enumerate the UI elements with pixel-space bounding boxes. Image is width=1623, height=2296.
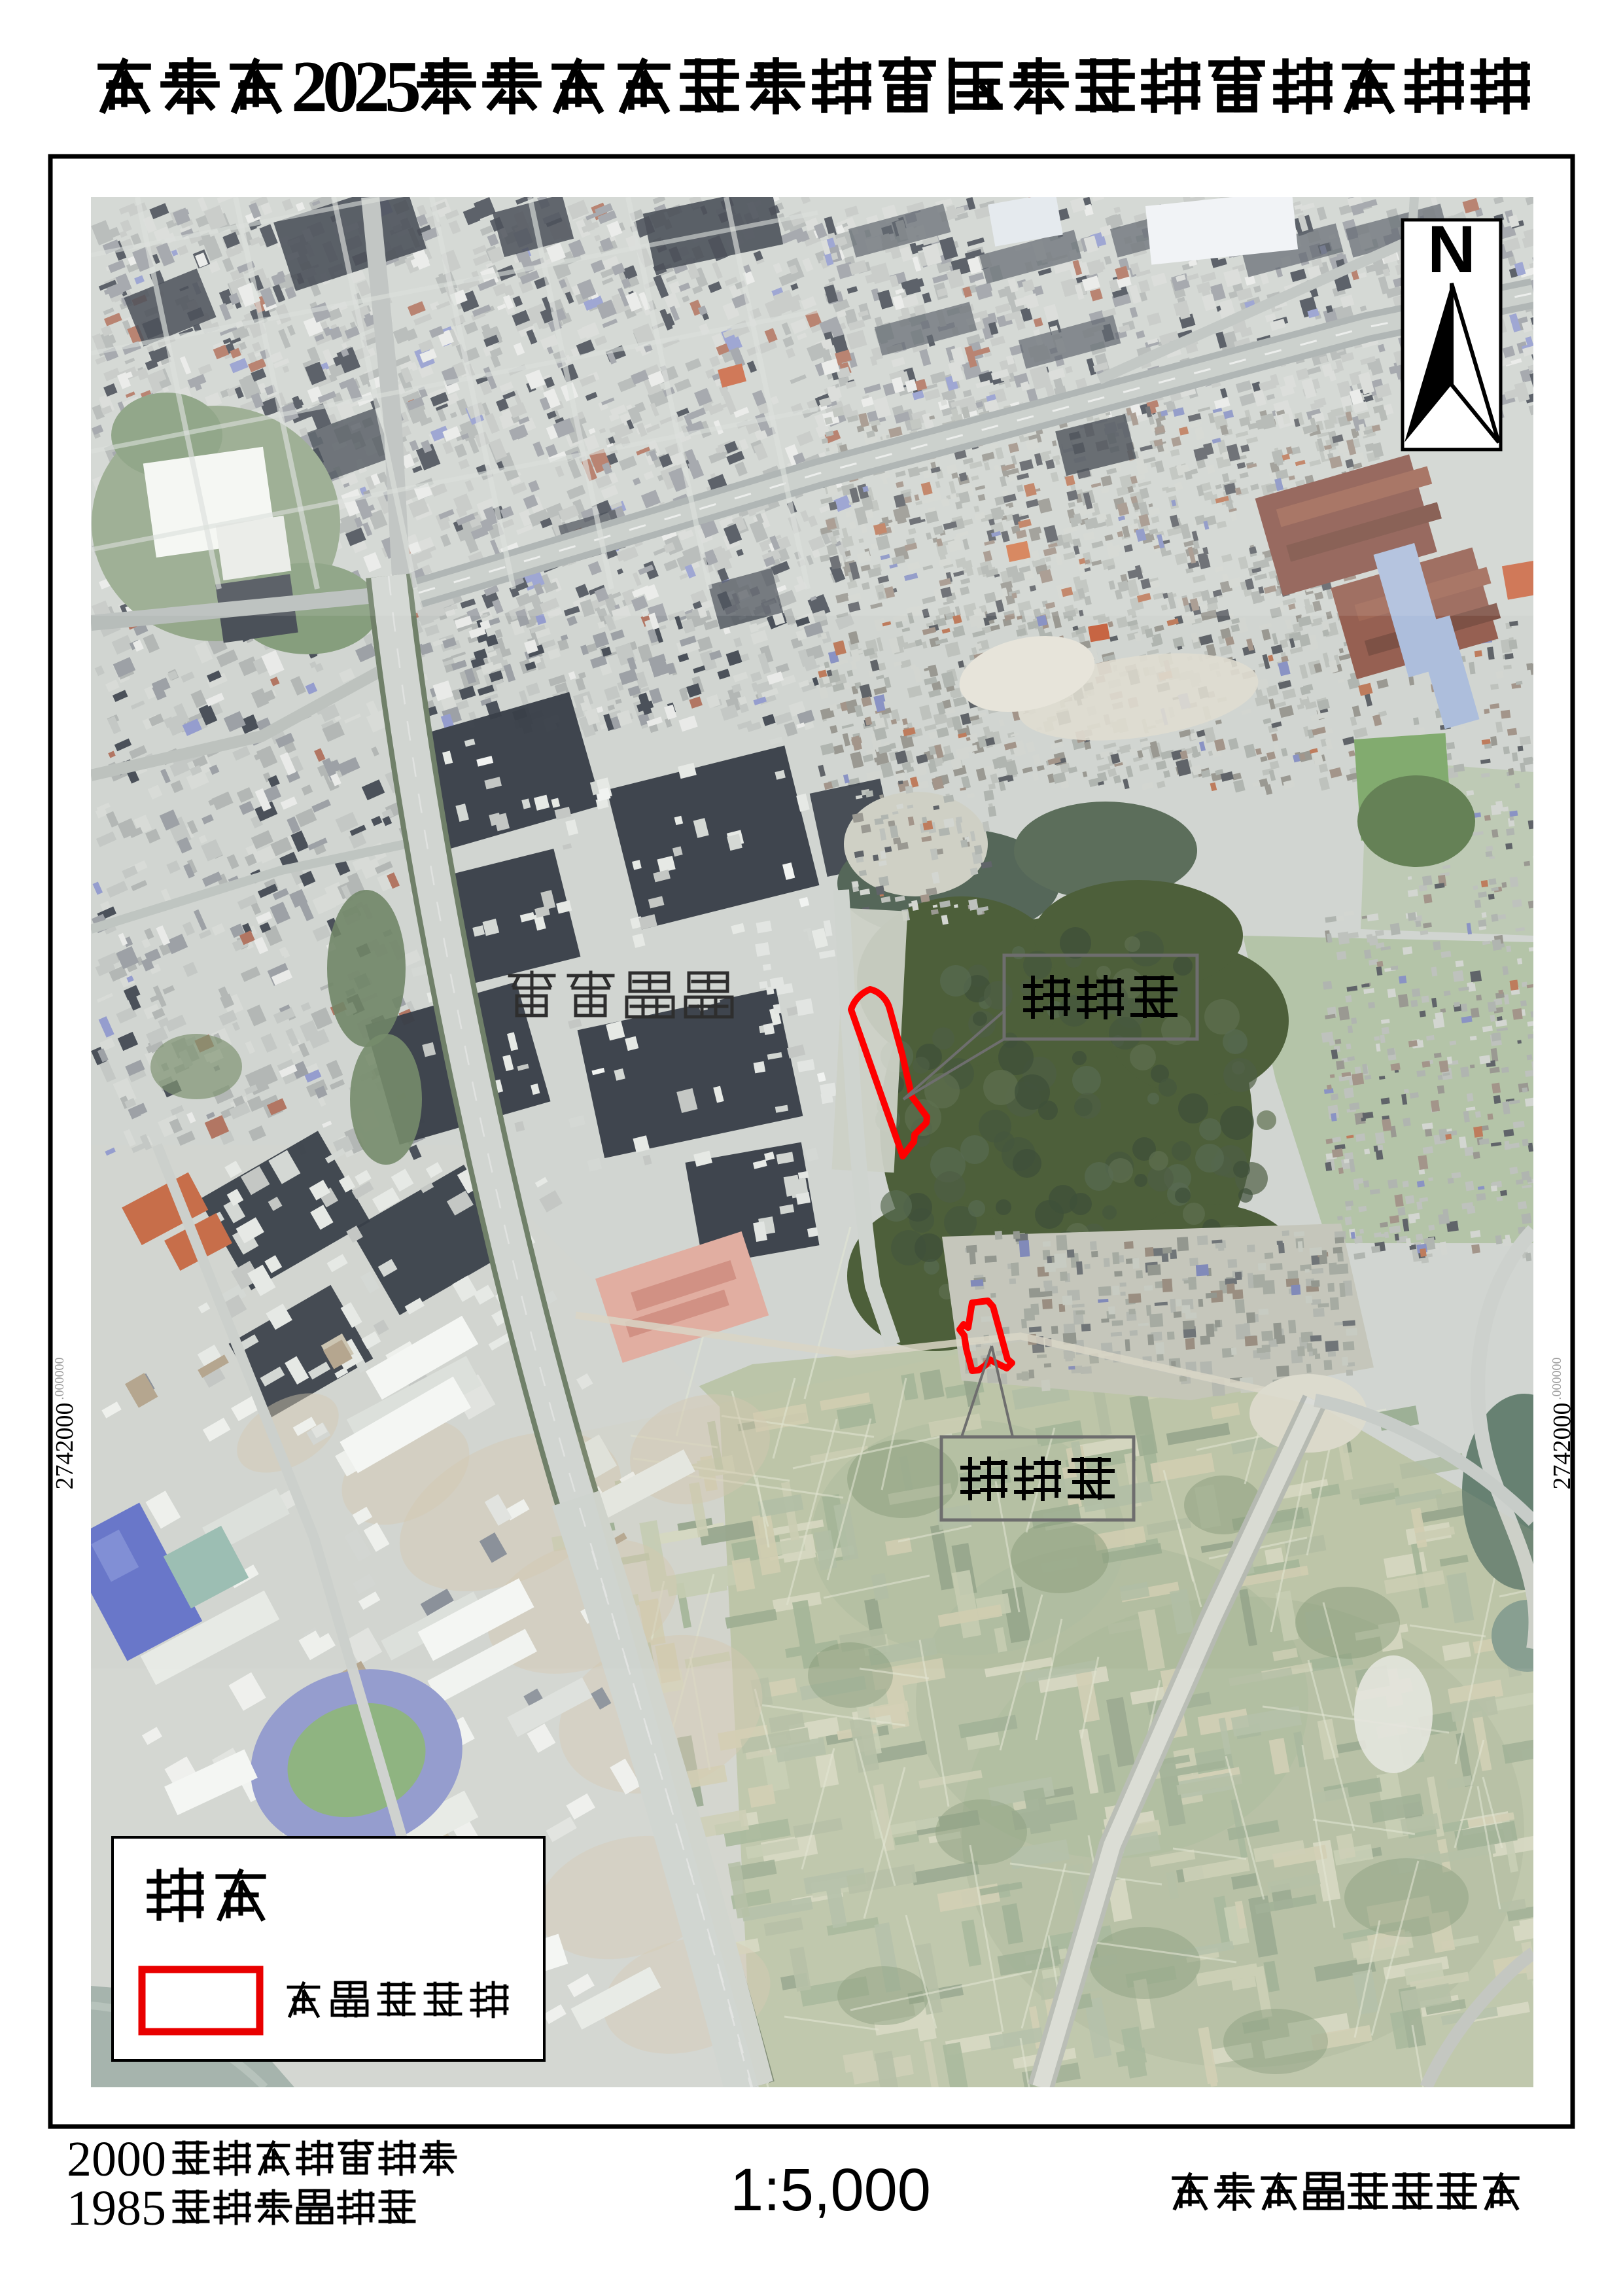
svg-text:N: N xyxy=(1427,212,1476,287)
svg-text:5: 5 xyxy=(385,46,421,128)
svg-text:2742000: 2742000 xyxy=(1548,1403,1576,1490)
svg-text:1:5,000: 1:5,000 xyxy=(730,2157,931,2223)
svg-text:.000000: .000000 xyxy=(52,1358,67,1400)
svg-text:1985: 1985 xyxy=(67,2181,166,2236)
svg-text:2742000: 2742000 xyxy=(51,1403,79,1490)
svg-text:2000: 2000 xyxy=(67,2132,166,2187)
svg-text:.000000: .000000 xyxy=(1550,1358,1564,1400)
